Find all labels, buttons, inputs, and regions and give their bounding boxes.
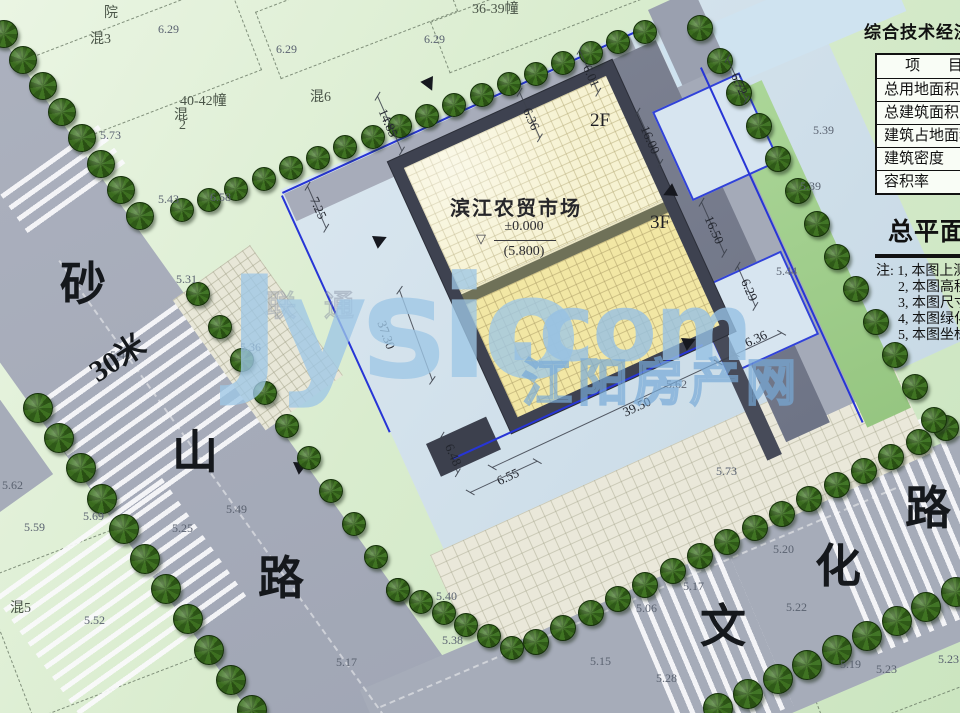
- road-name-char: 山: [172, 430, 218, 476]
- tree-icon: [824, 244, 850, 270]
- tree-icon: [107, 176, 135, 204]
- tree-icon: [23, 393, 53, 423]
- area-label: 混3: [90, 28, 111, 48]
- area-label: 院: [104, 2, 118, 22]
- panel-subtitle: 总平面定位图: [888, 212, 960, 248]
- table-row: 建筑占地面积: [877, 124, 960, 147]
- spot-elevation: 5.23: [876, 662, 897, 677]
- spot-elevation: 5.19: [840, 657, 861, 672]
- spot-elevation: 5.43: [158, 192, 179, 207]
- spot-elevation: 5.73: [100, 128, 121, 143]
- tree-icon: [29, 72, 57, 100]
- area-label: 36-39幢: [472, 0, 519, 18]
- tree-icon: [746, 113, 772, 139]
- note-line: 3, 本图尺寸: [898, 296, 960, 312]
- tree-icon: [660, 558, 686, 584]
- tree-icon: [852, 621, 882, 651]
- tree-icon: [578, 600, 604, 626]
- title-block: 综合技术经济指标 项 目 总用地面积总建筑面积建筑占地面积建筑密度容积率 总平面…: [858, 18, 960, 344]
- building-level-label: ±0.000: [474, 219, 574, 235]
- tree-icon: [804, 211, 830, 237]
- building-level-paren: (5.800): [474, 244, 574, 260]
- tree-icon: [279, 156, 303, 180]
- spot-elevation: 5.52: [84, 613, 105, 628]
- indicators-table: 项 目 总用地面积总建筑面积建筑占地面积建筑密度容积率: [875, 53, 960, 195]
- tree-icon: [742, 515, 768, 541]
- tree-icon: [253, 381, 277, 405]
- tree-icon: [605, 586, 631, 612]
- building-name-label: 滨江农贸市场: [450, 192, 582, 221]
- site-plan-canvas: 14.857.256.366.016.7216.0016.506.2937.30…: [0, 0, 960, 713]
- tree-icon: [687, 15, 713, 41]
- spot-elevation: 5.06: [636, 601, 657, 616]
- tree-icon: [194, 635, 224, 665]
- level-rule: [494, 240, 556, 241]
- spot-elevation: 6.29: [158, 22, 179, 37]
- tree-icon: [524, 62, 548, 86]
- note-line: 2, 本图高程: [898, 280, 960, 296]
- tree-icon: [275, 414, 299, 438]
- spot-elevation: 5.49: [226, 502, 247, 517]
- tree-icon: [792, 650, 822, 680]
- spot-elevation: 5.17: [336, 655, 357, 670]
- tree-icon: [763, 664, 793, 694]
- spot-elevation: 5.69: [83, 509, 104, 524]
- tree-icon: [87, 150, 115, 178]
- spot-elevation: 5.62: [2, 478, 23, 493]
- spot-elevation: 5.44: [776, 264, 797, 279]
- tree-icon: [173, 604, 203, 634]
- road-name-char: 文: [700, 604, 746, 650]
- table-row: 总建筑面积: [877, 101, 960, 124]
- tree-icon: [306, 146, 330, 170]
- tree-icon: [432, 601, 456, 625]
- spot-elevation: 5.15: [590, 654, 611, 669]
- note-line: 5, 本图坐标: [898, 328, 960, 344]
- tree-icon: [550, 615, 576, 641]
- note-line: 注: 1, 本图上测: [876, 264, 960, 280]
- spot-elevation: 5.20: [773, 542, 794, 557]
- tree-icon: [579, 41, 603, 65]
- spot-elevation: 5.23: [938, 652, 959, 667]
- table-row: 容积率: [877, 170, 960, 193]
- spot-elevation: 5.25: [172, 521, 193, 536]
- tree-icon: [824, 472, 850, 498]
- area-label: 混5: [10, 597, 31, 617]
- tree-icon: [851, 458, 877, 484]
- table-row: 建筑密度: [877, 147, 960, 170]
- tree-icon: [342, 512, 366, 536]
- tree-icon: [765, 146, 791, 172]
- tree-icon: [882, 606, 912, 636]
- spot-elevation: 5.59: [24, 520, 45, 535]
- tree-icon: [911, 592, 941, 622]
- table-header: 项 目: [877, 55, 960, 78]
- tree-icon: [386, 578, 410, 602]
- spot-elevation: 5.62: [666, 377, 687, 392]
- spot-elevation: 5.38: [442, 633, 463, 648]
- tree-icon: [208, 315, 232, 339]
- tree-icon: [216, 665, 246, 695]
- tree-icon: [633, 20, 657, 44]
- spot-elevation: 5.31: [176, 272, 197, 287]
- area-label: 混6: [310, 86, 331, 106]
- spot-elevation: 6.58: [210, 190, 231, 205]
- spot-elevation: 5.36: [240, 340, 261, 355]
- tree-icon: [409, 590, 433, 614]
- panel-title: 综合技术经济指标: [864, 18, 960, 43]
- note-line: 4, 本图绿化: [898, 312, 960, 328]
- tree-icon: [130, 544, 160, 574]
- spot-elevation: 6.29: [276, 42, 297, 57]
- road-name-char: 化: [815, 544, 861, 590]
- tree-icon: [882, 342, 908, 368]
- tree-icon: [109, 514, 139, 544]
- road-name-char: 路: [258, 556, 304, 602]
- spot-elevation: 5.39: [813, 123, 834, 138]
- spot-elevation: 5.39: [800, 179, 821, 194]
- tree-icon: [733, 679, 763, 709]
- tree-icon: [66, 453, 96, 483]
- floor-label-3f: 3F: [650, 212, 670, 234]
- spot-elevation: 5.28: [656, 671, 677, 686]
- area-label: 2: [179, 118, 186, 134]
- tree-icon: [415, 104, 439, 128]
- spot-elevation: 6.29: [424, 32, 445, 47]
- table-row: 总用地面积: [877, 78, 960, 101]
- spot-elevation: 5.17: [683, 579, 704, 594]
- tree-icon: [523, 629, 549, 655]
- tree-icon: [906, 429, 932, 455]
- tree-icon: [921, 407, 947, 433]
- tree-icon: [252, 167, 276, 191]
- panel-rule: [875, 254, 960, 258]
- tree-icon: [878, 444, 904, 470]
- tree-icon: [500, 636, 524, 660]
- spot-elevation: 5.22: [786, 600, 807, 615]
- floor-label-2f: 2F: [590, 110, 610, 132]
- road-name-char: 路: [905, 486, 951, 532]
- tree-icon: [364, 545, 388, 569]
- road-name-char: 砂: [60, 262, 106, 308]
- tree-icon: [126, 202, 154, 230]
- tree-icon: [902, 374, 928, 400]
- panel-notes: 注: 1, 本图上测2, 本图高程3, 本图尺寸4, 本图绿化5, 本图坐标: [858, 264, 960, 344]
- tree-icon: [68, 124, 96, 152]
- table-rows: 总用地面积总建筑面积建筑占地面积建筑密度容积率: [877, 78, 960, 193]
- spot-elevation: 5.40: [436, 589, 457, 604]
- tree-icon: [470, 83, 494, 107]
- tree-icon: [769, 501, 795, 527]
- spot-elevation: 5.73: [716, 464, 737, 479]
